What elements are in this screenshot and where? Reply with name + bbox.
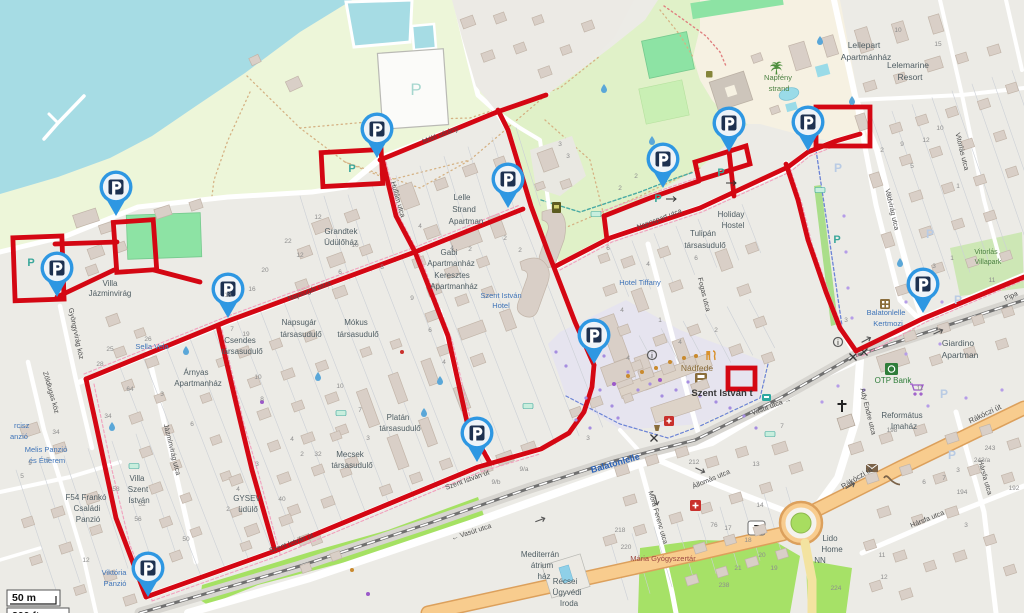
svg-text:218: 218 — [615, 527, 626, 534]
svg-text:8: 8 — [260, 396, 264, 403]
svg-text:P: P — [948, 448, 956, 462]
svg-text:12: 12 — [296, 252, 304, 259]
svg-text:Lelle: Lelle — [454, 193, 471, 202]
svg-text:üdülő: üdülő — [238, 505, 258, 514]
svg-text:238: 238 — [719, 582, 730, 589]
svg-text:Jázminvirág: Jázminvirág — [89, 289, 132, 298]
svg-text:7: 7 — [46, 457, 50, 464]
svg-text:társasudulő: társasudulő — [331, 461, 373, 470]
svg-text:50 m: 50 m — [12, 592, 36, 604]
svg-text:6: 6 — [606, 245, 610, 252]
svg-text:Platán: Platán — [387, 413, 410, 422]
svg-text:társasudulő: társasudulő — [379, 424, 421, 433]
svg-text:Mária Gyógyszertár: Mária Gyógyszertár — [630, 554, 696, 563]
svg-text:11: 11 — [879, 552, 886, 559]
svg-text:9: 9 — [28, 460, 32, 467]
svg-text:Hotel Tiffany: Hotel Tiffany — [619, 278, 661, 287]
svg-text:Lellepart: Lellepart — [848, 40, 881, 50]
svg-text:12: 12 — [922, 137, 930, 144]
svg-text:GYSEV: GYSEV — [233, 494, 261, 503]
svg-text:11: 11 — [917, 385, 924, 392]
svg-text:Kertmozi: Kertmozi — [873, 319, 903, 328]
svg-text:Giardino: Giardino — [942, 338, 974, 348]
svg-text:10: 10 — [254, 374, 262, 381]
svg-text:10: 10 — [936, 125, 944, 132]
svg-text:Grandtek: Grandtek — [325, 227, 359, 236]
svg-text:6: 6 — [694, 255, 698, 262]
svg-text:4: 4 — [290, 436, 294, 443]
svg-text:10: 10 — [351, 242, 359, 249]
svg-text:4: 4 — [646, 261, 650, 268]
svg-text:2: 2 — [618, 185, 622, 192]
svg-text:Apartmanház: Apartmanház — [174, 379, 222, 388]
svg-text:4: 4 — [418, 223, 422, 230]
svg-text:Református: Református — [881, 411, 922, 420]
svg-text:17: 17 — [724, 525, 732, 532]
svg-text:19: 19 — [770, 565, 778, 572]
svg-text:Apartmanház: Apartmanház — [427, 259, 475, 268]
svg-text:OTP Bank: OTP Bank — [875, 376, 913, 385]
svg-text:21: 21 — [734, 565, 742, 572]
svg-text:7: 7 — [230, 326, 234, 333]
svg-text:1: 1 — [658, 317, 662, 324]
svg-text:3: 3 — [586, 435, 590, 442]
svg-text:társasudulő: társasudulő — [280, 330, 322, 339]
svg-text:50: 50 — [182, 536, 190, 543]
svg-text:Iroda: Iroda — [560, 599, 579, 608]
svg-text:64: 64 — [126, 386, 134, 393]
svg-text:Vitorlás: Vitorlás — [974, 249, 998, 256]
svg-text:3: 3 — [932, 263, 936, 270]
svg-text:212: 212 — [689, 459, 700, 466]
svg-text:Árnyas: Árnyas — [184, 368, 209, 377]
svg-text:2: 2 — [518, 247, 522, 254]
svg-text:10: 10 — [336, 383, 344, 390]
svg-text:9/a: 9/a — [519, 466, 528, 473]
svg-text:76: 76 — [710, 522, 718, 529]
svg-text:Lido: Lido — [822, 534, 838, 543]
svg-text:Apartman: Apartman — [942, 350, 979, 360]
svg-text:25: 25 — [106, 346, 114, 353]
svg-text:13: 13 — [752, 461, 760, 468]
svg-text:Ügyvédi: Ügyvédi — [553, 588, 582, 597]
svg-text:i: i — [651, 353, 653, 360]
svg-text:2: 2 — [714, 327, 718, 334]
svg-text:18: 18 — [224, 292, 232, 299]
svg-text:6: 6 — [190, 421, 194, 428]
svg-text:NN: NN — [814, 556, 826, 565]
svg-text:Hostel: Hostel — [722, 221, 745, 230]
svg-text:15: 15 — [934, 41, 942, 48]
svg-text:Resort: Resort — [897, 72, 923, 82]
svg-text:Hotel: Hotel — [492, 301, 510, 310]
svg-text:243/a: 243/a — [974, 457, 991, 464]
svg-text:Sella Vela: Sella Vela — [135, 342, 169, 351]
svg-text:224: 224 — [831, 585, 842, 592]
svg-text:194: 194 — [957, 489, 968, 496]
svg-text:rcisz: rcisz — [14, 421, 30, 430]
svg-text:3: 3 — [964, 522, 968, 529]
svg-text:11: 11 — [989, 277, 996, 284]
svg-text:P: P — [410, 80, 421, 99]
svg-text:20: 20 — [758, 552, 766, 559]
svg-text:2: 2 — [300, 451, 304, 458]
svg-text:3: 3 — [160, 391, 164, 398]
svg-text:Gabi: Gabi — [441, 248, 458, 257]
svg-text:Villa: Villa — [103, 279, 119, 288]
svg-text:19: 19 — [242, 331, 250, 338]
svg-text:társasudulő: társasudulő — [337, 330, 379, 339]
svg-text:Home: Home — [821, 545, 843, 554]
svg-text:3: 3 — [956, 467, 960, 474]
svg-text:Apartmanház: Apartmanház — [430, 282, 478, 291]
svg-text:9/b: 9/b — [491, 479, 500, 486]
svg-text:3: 3 — [566, 153, 570, 160]
svg-text:P: P — [348, 163, 355, 175]
svg-text:Tulipán: Tulipán — [690, 229, 716, 238]
svg-text:4: 4 — [626, 355, 630, 362]
svg-text:Villa: Villa — [130, 474, 146, 483]
svg-text:10: 10 — [894, 27, 902, 34]
svg-text:Szent István: Szent István — [480, 291, 521, 300]
svg-text:56: 56 — [134, 516, 142, 523]
svg-text:5: 5 — [20, 473, 24, 480]
svg-text:18: 18 — [744, 537, 752, 544]
svg-text:4: 4 — [678, 339, 682, 346]
svg-text:Családi: Családi — [74, 504, 101, 513]
svg-text:4: 4 — [620, 307, 624, 314]
svg-text:ház: ház — [538, 572, 551, 581]
svg-text:Mediterrán: Mediterrán — [521, 550, 559, 559]
svg-text:Balatonlelle: Balatonlelle — [867, 308, 906, 317]
svg-text:Mecsek: Mecsek — [336, 450, 365, 459]
svg-text:20: 20 — [261, 267, 269, 274]
svg-text:társasudulő: társasudulő — [684, 241, 726, 250]
svg-text:1: 1 — [956, 183, 960, 190]
svg-text:anzió: anzió — [10, 432, 28, 441]
svg-text:F54 Frankó: F54 Frankó — [66, 493, 107, 502]
svg-text:3: 3 — [888, 193, 892, 200]
svg-text:Napsugár: Napsugár — [282, 318, 317, 327]
svg-text:P: P — [717, 167, 724, 179]
svg-text:P: P — [27, 257, 34, 269]
svg-text:52: 52 — [138, 501, 146, 508]
svg-text:12: 12 — [314, 214, 322, 221]
svg-text:3: 3 — [558, 141, 562, 148]
svg-text:5: 5 — [910, 163, 914, 170]
svg-text:9: 9 — [900, 141, 904, 148]
svg-text:7: 7 — [358, 407, 362, 414]
svg-text:4: 4 — [236, 486, 240, 493]
svg-text:28: 28 — [96, 361, 104, 368]
svg-text:58: 58 — [112, 486, 120, 493]
svg-text:26: 26 — [144, 336, 152, 343]
svg-text:P: P — [954, 293, 962, 307]
svg-text:12: 12 — [82, 557, 90, 564]
svg-text:16: 16 — [248, 286, 256, 293]
svg-text:Szent: Szent — [128, 485, 149, 494]
svg-text:9: 9 — [410, 295, 414, 302]
svg-text:7: 7 — [780, 423, 784, 430]
svg-text:6: 6 — [922, 479, 926, 486]
svg-text:4: 4 — [442, 359, 446, 366]
svg-text:40: 40 — [278, 496, 286, 503]
svg-text:Mókus: Mókus — [344, 318, 368, 327]
svg-text:Villapark: Villapark — [975, 259, 1002, 266]
svg-text:P: P — [833, 234, 840, 246]
svg-text:P: P — [940, 387, 948, 401]
svg-text:2: 2 — [634, 173, 638, 180]
svg-text:Panzió: Panzió — [76, 515, 101, 524]
svg-text:14: 14 — [756, 502, 764, 509]
svg-text:2: 2 — [226, 506, 230, 513]
svg-text:P: P — [654, 193, 661, 205]
svg-text:P: P — [834, 161, 842, 175]
svg-text:6: 6 — [428, 327, 432, 334]
svg-text:Keresztes: Keresztes — [434, 271, 470, 280]
svg-text:12: 12 — [880, 574, 888, 581]
svg-text:22: 22 — [284, 238, 292, 245]
svg-text:2: 2 — [468, 246, 472, 253]
svg-text:3: 3 — [366, 435, 370, 442]
svg-text:7: 7 — [942, 475, 946, 482]
svg-text:2: 2 — [880, 147, 884, 154]
svg-text:Strand: Strand — [452, 205, 476, 214]
svg-text:Szent István t: Szent István t — [691, 388, 753, 399]
svg-text:strand: strand — [769, 84, 790, 93]
svg-text:Récsei: Récsei — [553, 577, 578, 586]
svg-text:220: 220 — [621, 544, 632, 551]
svg-text:Apartmánház: Apartmánház — [841, 52, 892, 62]
svg-text:átrium: átrium — [531, 561, 554, 570]
svg-text:3: 3 — [255, 461, 259, 468]
svg-text:3: 3 — [844, 317, 848, 324]
svg-text:Melis Panzió: Melis Panzió — [25, 445, 68, 454]
svg-text:i: i — [837, 340, 839, 347]
svg-text:P: P — [926, 227, 934, 241]
svg-text:Holiday: Holiday — [718, 210, 745, 219]
svg-text:8: 8 — [380, 264, 384, 271]
svg-text:243: 243 — [985, 445, 996, 452]
svg-text:34: 34 — [104, 413, 112, 420]
svg-text:Viktória: Viktória — [102, 568, 128, 577]
svg-text:198: 198 — [887, 427, 898, 434]
svg-text:34: 34 — [52, 429, 60, 436]
svg-text:6: 6 — [338, 269, 342, 276]
svg-text:4: 4 — [450, 245, 454, 252]
svg-text:Apartman: Apartman — [449, 217, 484, 226]
svg-text:Napfény: Napfény — [764, 73, 792, 82]
svg-text:társasudulő: társasudulő — [221, 347, 263, 356]
svg-text:32: 32 — [314, 451, 322, 458]
svg-text:2: 2 — [503, 235, 507, 242]
svg-text:1: 1 — [950, 255, 954, 262]
svg-text:192: 192 — [1009, 485, 1020, 492]
svg-text:Panzió: Panzió — [104, 579, 127, 588]
svg-text:Nádfede: Nádfede — [681, 363, 713, 373]
svg-text:Lelemarine: Lelemarine — [887, 60, 929, 70]
svg-text:Csendes: Csendes — [224, 336, 256, 345]
